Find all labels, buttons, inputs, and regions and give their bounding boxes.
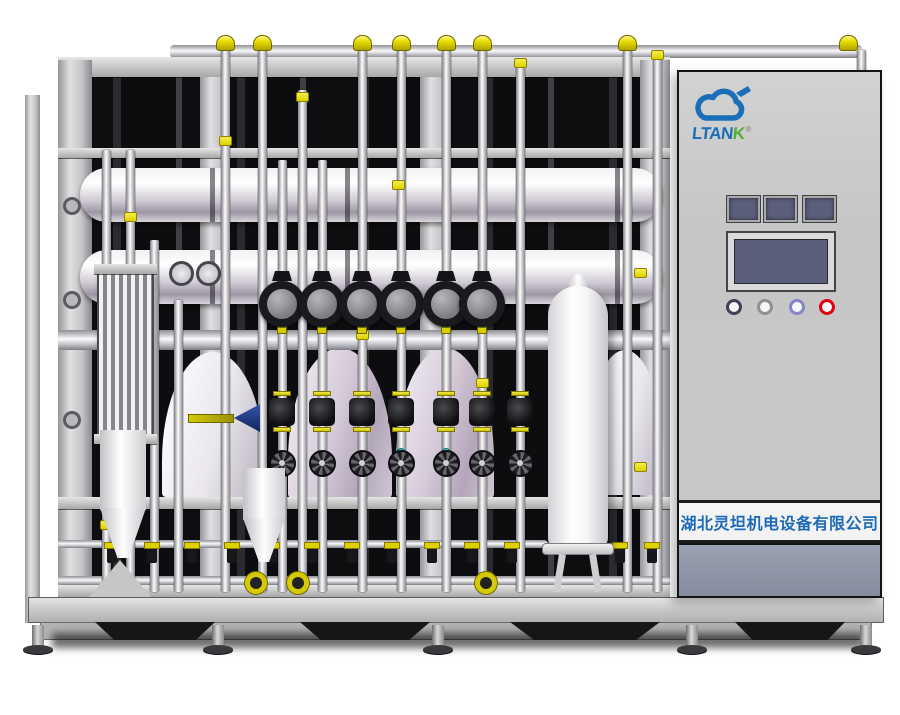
pipe-elbow-fitting <box>618 35 637 51</box>
yellow-valve-cap <box>296 92 309 102</box>
yellow-handwheel <box>245 572 267 594</box>
valve-flange-top <box>437 391 455 396</box>
handwheel-valve <box>349 450 376 477</box>
leveling-foot-stem <box>860 625 872 647</box>
yellow-handwheel <box>475 572 497 594</box>
drain-valve <box>187 547 197 563</box>
drain-valve <box>467 547 477 563</box>
drain-valve <box>147 547 157 563</box>
base-shadow <box>510 622 660 640</box>
horizontal-vessel-1 <box>80 168 662 222</box>
clamp-tip <box>317 327 327 334</box>
valve-flange-top <box>392 391 410 396</box>
valve-flange-top <box>313 391 331 396</box>
brand-text-green: K <box>732 124 746 143</box>
sanitary-port <box>63 291 81 309</box>
cone-vessel-2-body <box>243 468 285 520</box>
tank-skirt <box>542 543 614 555</box>
ltank-cloud-logo-icon <box>691 82 755 126</box>
vertical-pipe <box>221 38 230 592</box>
valve-flange-top <box>511 391 529 396</box>
heat-exchanger-top-plate <box>94 264 157 274</box>
indicator-window <box>764 196 797 222</box>
base-shadow <box>735 622 845 640</box>
yellow-handwheel <box>287 572 309 594</box>
handwheel-valve <box>388 450 415 477</box>
pipe-elbow-fitting <box>839 35 858 51</box>
diaphragm-valve <box>269 398 295 426</box>
yellow-valve-cap <box>476 378 489 388</box>
vertical-pipe <box>174 300 183 592</box>
plate-heat-exchanger <box>97 272 154 436</box>
diaphragm-valve <box>309 398 335 426</box>
clamp-tip <box>277 327 287 334</box>
vertical-pipe <box>516 60 525 592</box>
valve-flange-bottom <box>392 427 410 432</box>
leveling-foot-pad <box>203 645 233 654</box>
yellow-valve-cap <box>124 212 137 222</box>
vertical-pipe <box>653 55 662 592</box>
valve-flange-bottom <box>473 427 491 432</box>
indicator-window <box>803 196 836 222</box>
pipe-elbow-fitting <box>353 35 372 51</box>
drain-valve <box>387 547 397 563</box>
sanitary-port <box>63 411 81 429</box>
company-name-text: 湖北灵坦机电设备有限公司 <box>680 510 878 534</box>
drain-valve <box>647 547 657 563</box>
sanitary-port <box>63 197 81 215</box>
yellow-valve-cap <box>514 58 527 68</box>
clamp-stem <box>391 271 411 281</box>
panel-button <box>789 299 805 315</box>
drain-valve <box>307 547 317 563</box>
tank-body <box>548 286 608 548</box>
control-cabinet: LTANK® 湖北灵坦机电设备有限公司 <box>677 70 882 598</box>
yellow-valve-cap <box>392 180 405 190</box>
company-name-plate: 湖北灵坦机电设备有限公司 <box>679 500 880 543</box>
leveling-foot-stem <box>32 625 44 647</box>
pipe-elbow-fitting <box>253 35 272 51</box>
leveling-foot-stem <box>212 625 224 647</box>
drain-valve <box>227 547 237 563</box>
vertical-pipe <box>318 160 327 592</box>
vertical-pipe <box>623 38 632 592</box>
base-shadow <box>95 622 215 640</box>
diaphragm-valve <box>469 398 495 426</box>
valve-flange-top <box>473 391 491 396</box>
indicator-window <box>727 196 760 222</box>
outer-left-post <box>25 95 40 623</box>
drain-valve <box>615 547 625 563</box>
base-beam <box>28 597 884 623</box>
clamp-tip <box>441 327 451 334</box>
drain-valve <box>507 547 517 563</box>
clamp-stem <box>272 271 292 281</box>
pressure-gauge <box>169 261 194 286</box>
panel-button <box>819 299 835 315</box>
sight-glass-clamp <box>459 281 505 327</box>
drain-valve <box>347 547 357 563</box>
valve-flange-bottom <box>353 427 371 432</box>
sight-glass-clamp <box>378 281 424 327</box>
clamp-stem <box>312 271 332 281</box>
handwheel-valve <box>469 450 496 477</box>
registered-mark: ® <box>745 125 750 134</box>
valve-flange-bottom <box>273 427 291 432</box>
leveling-foot-pad <box>851 645 881 654</box>
vertical-pipe <box>298 90 307 592</box>
valve-flange-bottom <box>511 427 529 432</box>
clamp-tip <box>396 327 406 334</box>
panel-button <box>726 299 742 315</box>
valve-flange-bottom <box>437 427 455 432</box>
vertical-pipe <box>857 50 866 72</box>
yellow-valve-cap <box>651 50 664 60</box>
diaphragm-valve <box>433 398 459 426</box>
diaphragm-valve <box>349 398 375 426</box>
pipe-elbow-fitting <box>473 35 492 51</box>
brand-wordmark: LTANK® <box>691 124 751 144</box>
clamp-stem <box>352 271 372 281</box>
pressure-gauge <box>196 261 221 286</box>
pipe-elbow-fitting <box>216 35 235 51</box>
valve-flange-top <box>353 391 371 396</box>
clamp-stem <box>436 271 456 281</box>
machine-render: LTANK® 湖北灵坦机电设备有限公司 <box>0 0 900 715</box>
clamp-tip <box>477 327 487 334</box>
pipe-elbow-fitting <box>437 35 456 51</box>
hmi-screen <box>734 239 828 284</box>
diaphragm-valve <box>388 398 414 426</box>
leveling-foot-pad <box>23 645 53 654</box>
leveling-foot-stem <box>686 625 698 647</box>
leveling-foot-pad <box>677 645 707 654</box>
handwheel-valve <box>433 450 460 477</box>
panel-button <box>757 299 773 315</box>
yellow-valve-cap <box>219 136 232 146</box>
valve-flange-top <box>273 391 291 396</box>
drain-valve <box>427 547 437 563</box>
leveling-foot-stem <box>432 625 444 647</box>
base-shadow <box>300 622 430 640</box>
frame-post-left <box>58 60 92 597</box>
yellow-valve-cap <box>634 268 647 278</box>
cabinet-lower-panel <box>679 543 880 596</box>
leveling-foot-pad <box>423 645 453 654</box>
handwheel-valve <box>507 450 534 477</box>
valve-flange-bottom <box>313 427 331 432</box>
clamp-tip <box>357 327 367 334</box>
pipe-elbow-fitting <box>392 35 411 51</box>
brand-text-blue: LTAN <box>691 124 734 143</box>
pump-shaft <box>188 414 234 423</box>
diaphragm-valve <box>507 398 533 426</box>
hmi-screen-bezel <box>726 231 836 292</box>
handwheel-valve <box>309 450 336 477</box>
clamp-stem <box>472 271 492 281</box>
cone-vessel-1-body <box>100 430 146 510</box>
yellow-valve-cap <box>634 462 647 472</box>
